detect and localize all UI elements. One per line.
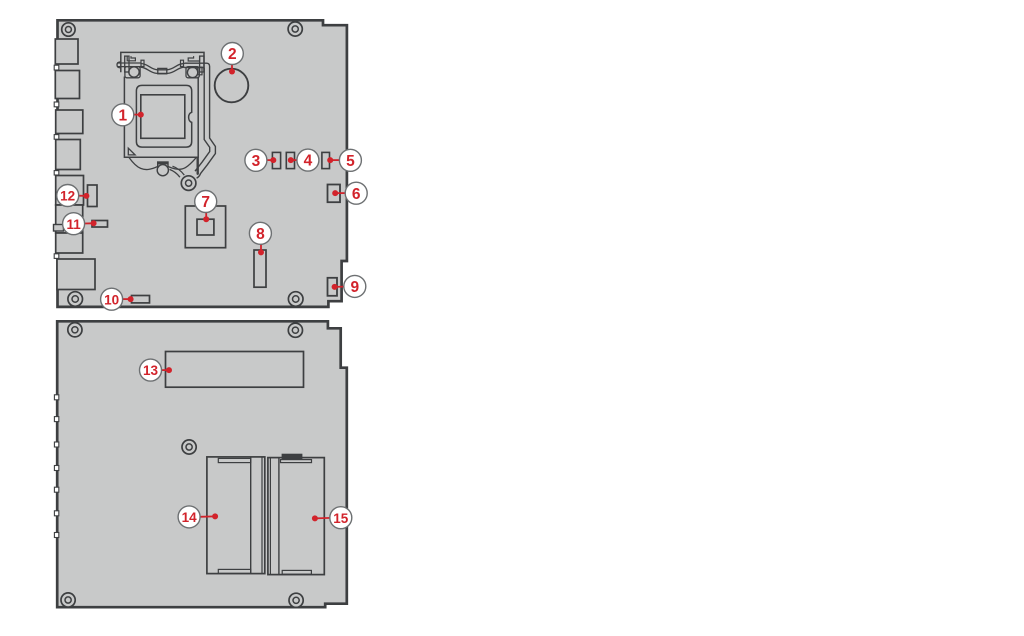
svg-text:11: 11 [66, 217, 81, 232]
svg-text:13: 13 [143, 363, 159, 378]
svg-text:14: 14 [182, 510, 198, 525]
svg-text:7: 7 [201, 194, 210, 211]
svg-text:15: 15 [333, 511, 349, 526]
svg-text:9: 9 [350, 279, 359, 296]
svg-text:4: 4 [304, 153, 313, 170]
svg-text:2: 2 [228, 46, 237, 63]
svg-text:6: 6 [352, 186, 361, 203]
svg-text:1: 1 [118, 107, 127, 124]
svg-text:10: 10 [104, 292, 119, 307]
svg-text:3: 3 [252, 153, 261, 170]
svg-text:5: 5 [346, 153, 355, 170]
svg-text:12: 12 [60, 189, 75, 204]
svg-text:8: 8 [256, 226, 265, 243]
